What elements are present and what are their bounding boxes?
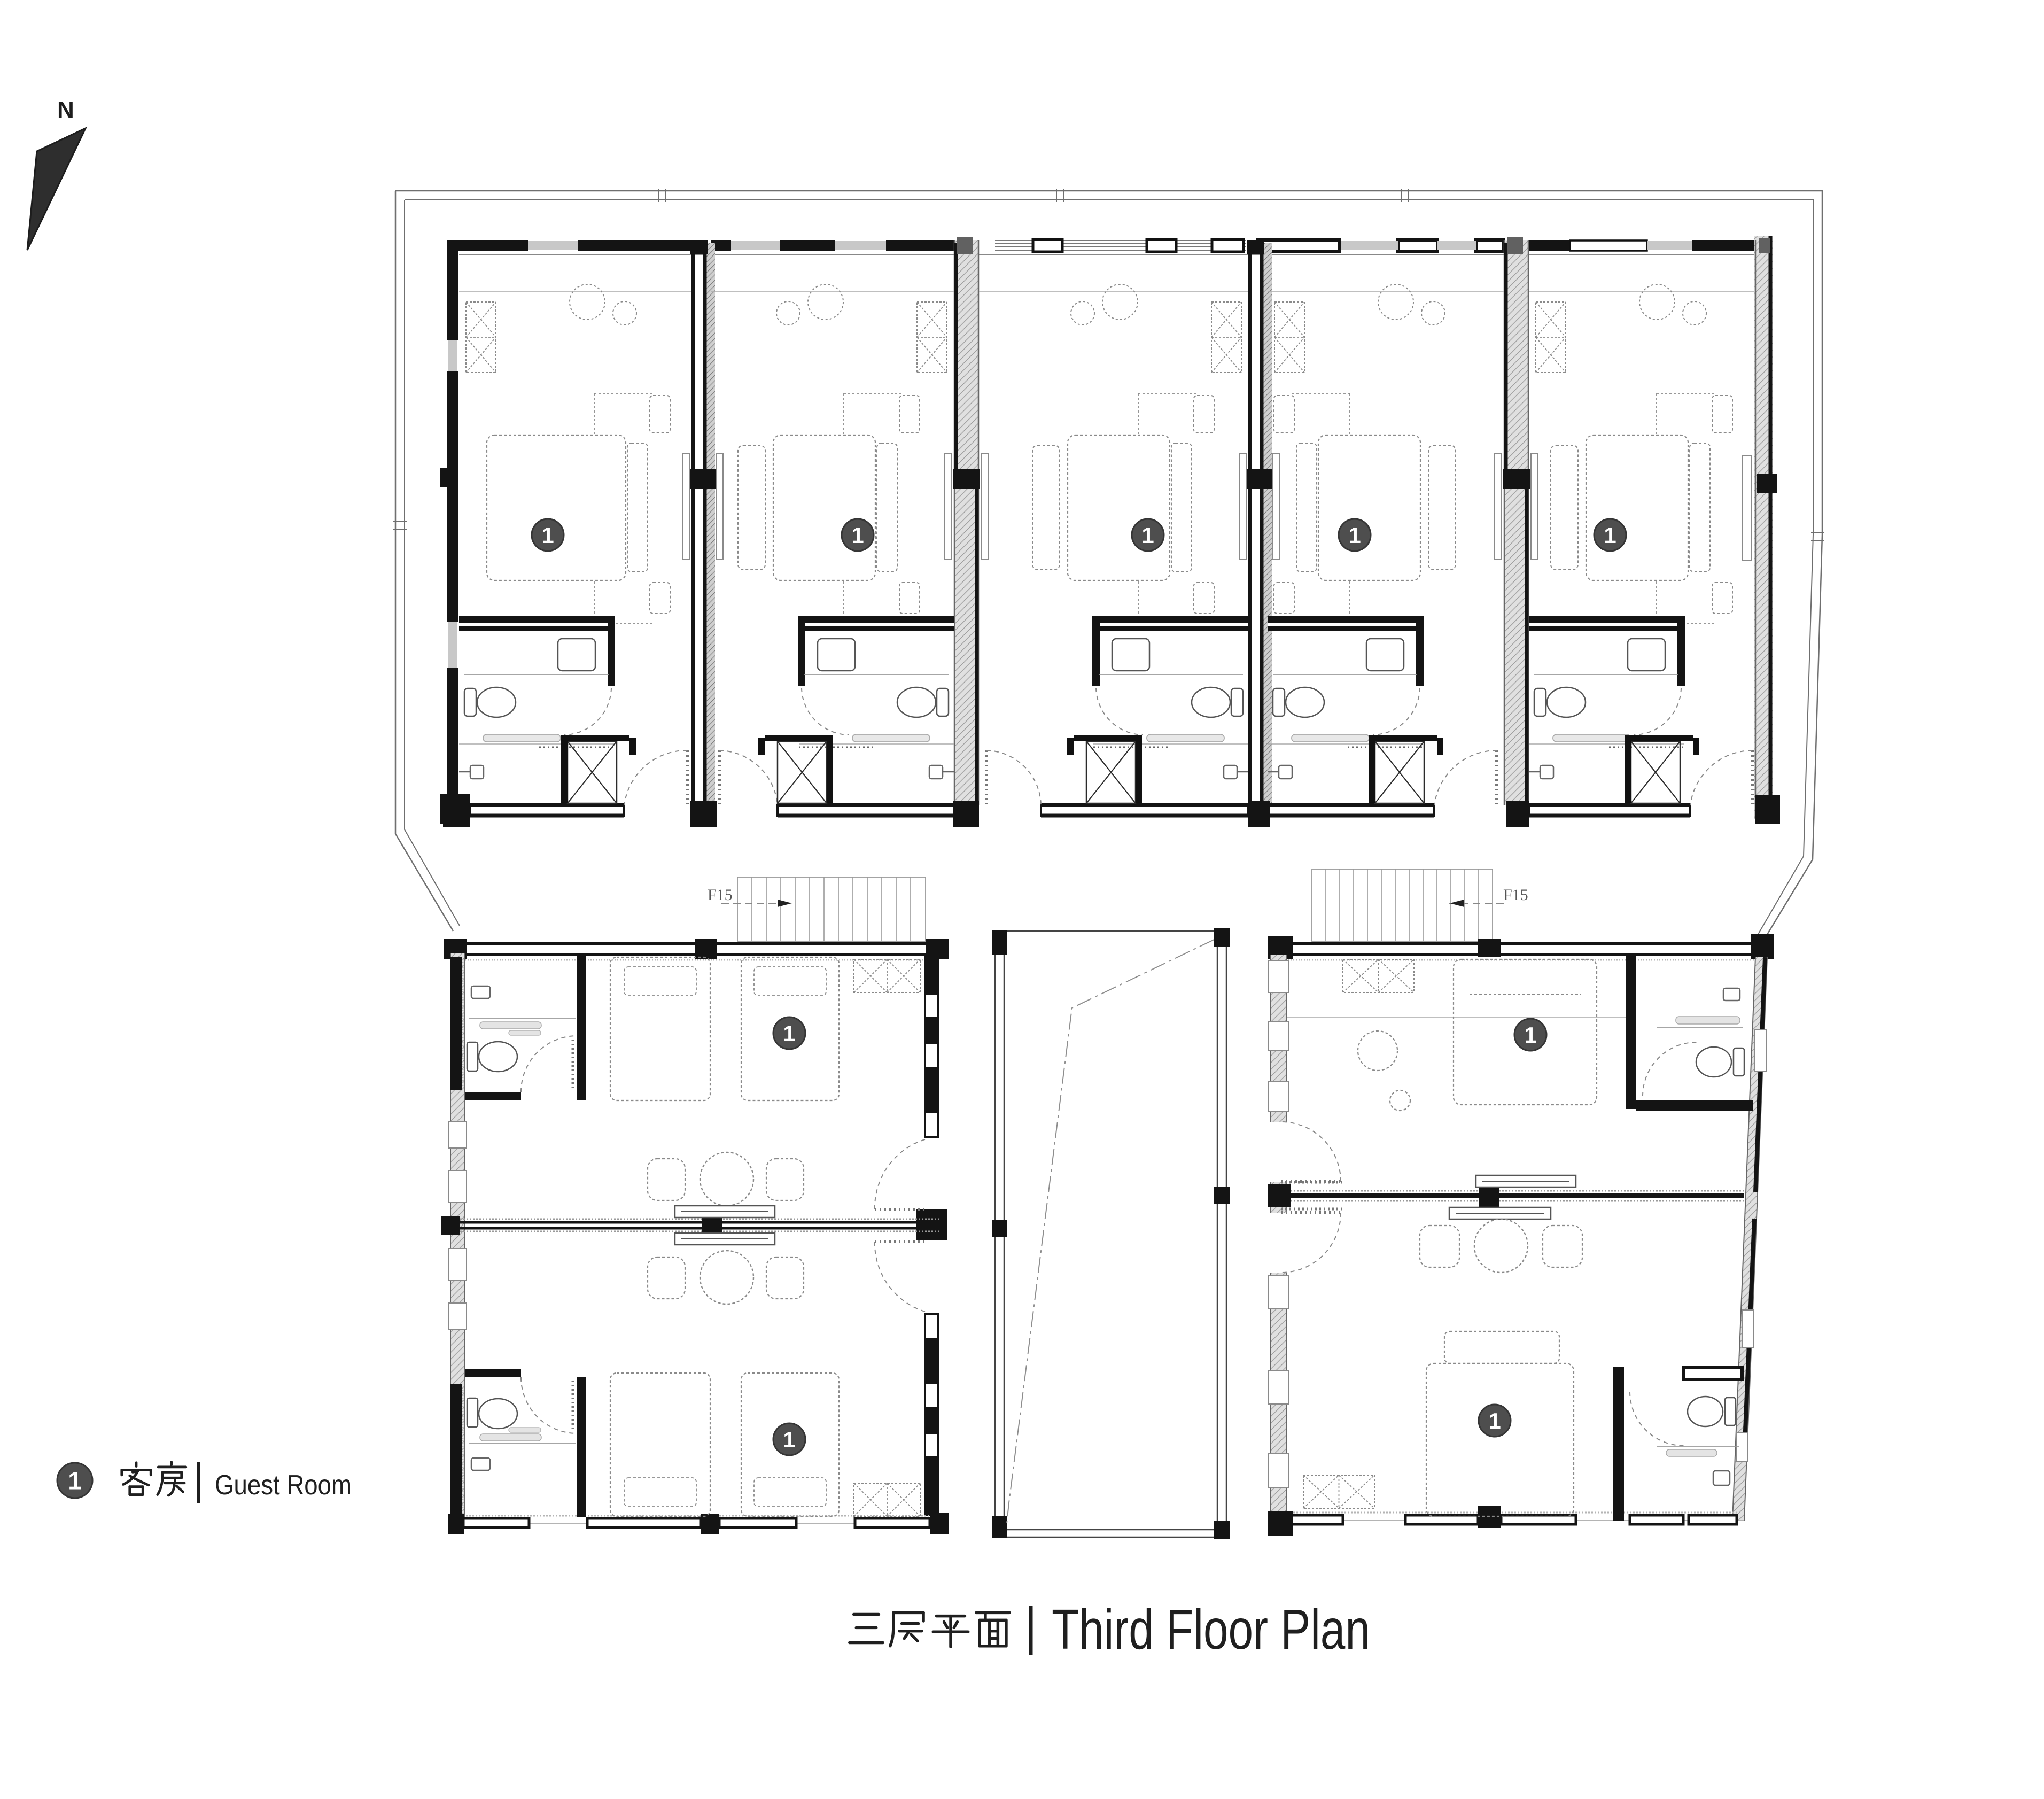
svg-text:1: 1 — [783, 1021, 795, 1046]
svg-text:1: 1 — [1488, 1408, 1501, 1433]
svg-text:N: N — [57, 97, 74, 123]
svg-text:1: 1 — [541, 523, 554, 548]
svg-text:1: 1 — [1604, 523, 1616, 548]
svg-text:F15: F15 — [1503, 886, 1528, 904]
svg-text:1: 1 — [851, 523, 864, 548]
svg-text:Third Floor Plan: Third Floor Plan — [1052, 1598, 1370, 1661]
svg-text:1: 1 — [1141, 523, 1154, 548]
svg-text:Guest Room: Guest Room — [215, 1470, 352, 1501]
svg-text:1: 1 — [68, 1467, 82, 1495]
svg-text:1: 1 — [1524, 1022, 1536, 1048]
svg-text:1: 1 — [783, 1427, 795, 1452]
svg-text:F15: F15 — [708, 886, 733, 904]
svg-text:1: 1 — [1348, 523, 1361, 548]
